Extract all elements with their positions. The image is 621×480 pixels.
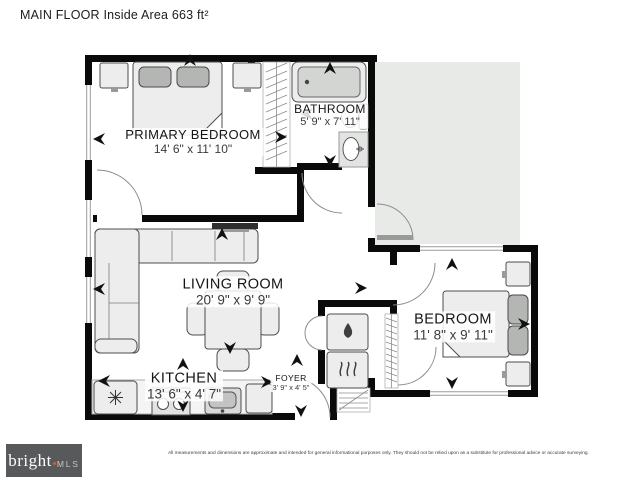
door-arc	[97, 170, 142, 215]
nightstand	[502, 262, 530, 286]
door-arc	[398, 347, 436, 385]
room-label-living-room: LIVING ROOM 20' 9" x 9' 9"	[180, 276, 285, 307]
deck-door-slab	[377, 235, 413, 240]
kitchen-cabinet	[246, 384, 272, 413]
room-dims: 11' 8" x 9' 11"	[411, 328, 495, 343]
snowflake-icon	[108, 390, 123, 405]
room-name: BEDROOM	[411, 311, 495, 327]
room-label-bathroom: BATHROOM 5' 9" x 7' 11"	[292, 103, 368, 129]
room-label-primary-bedroom: PRIMARY BEDROOM 14' 6" x 11' 10"	[123, 128, 263, 156]
logo-suffix-text: MLS	[57, 459, 80, 469]
door-arc	[393, 263, 435, 305]
floor-plan-drawing	[0, 0, 621, 480]
window	[84, 85, 93, 160]
bedroom-closet-hatch	[385, 314, 398, 388]
room-dims: 5' 9" x 7' 11"	[292, 117, 368, 129]
room-label-foyer: FOYER 3' 9" x 4' 5"	[271, 374, 312, 392]
nightstand	[502, 362, 530, 386]
window	[84, 277, 93, 323]
deck-area	[375, 62, 520, 245]
shelf-closet	[337, 388, 370, 412]
primary-bed	[133, 62, 222, 135]
room-name: KITCHEN	[145, 370, 223, 386]
arrow-icon	[93, 133, 105, 145]
room-dims: 13' 6" x 4' 7"	[145, 387, 223, 402]
door-arc	[305, 333, 322, 350]
door-arc	[302, 173, 342, 213]
window	[420, 244, 503, 253]
arrow-icon	[446, 258, 458, 270]
washer	[327, 314, 368, 350]
bathroom-sink	[339, 132, 368, 167]
room-label-bedroom: BEDROOM 11' 8" x 9' 11"	[411, 311, 495, 342]
arrow-icon	[355, 282, 367, 294]
refrigerator	[94, 381, 137, 414]
arrow-icon	[291, 354, 303, 366]
arrow-icon	[295, 405, 307, 417]
floor-plan-page: MAIN FLOOR Inside Area 663 ft²	[0, 0, 621, 480]
disclaimer-text: All measurements and dimensions are appr…	[168, 451, 614, 456]
room-label-kitchen: KITCHEN 13' 6" x 4' 7"	[145, 370, 223, 401]
wardrobe-closet-hatch	[263, 62, 290, 167]
dryer	[327, 352, 368, 388]
nightstand	[100, 63, 128, 92]
room-dims: 14' 6" x 11' 10"	[123, 143, 263, 156]
arrow-icon	[446, 377, 458, 389]
door-arc	[305, 316, 322, 333]
dining-chair	[217, 349, 249, 371]
logo-brand-text: bright	[8, 451, 52, 471]
room-name: PRIMARY BEDROOM	[123, 128, 263, 143]
logo-accent-dot	[53, 462, 56, 465]
nightstand	[233, 63, 261, 92]
room-name: BATHROOM	[292, 103, 368, 116]
arrow-icon	[177, 358, 189, 370]
room-dims: 20' 9" x 9' 9"	[180, 293, 285, 308]
room-dims: 3' 9" x 4' 5"	[271, 384, 312, 392]
brightmls-logo: bright MLS	[6, 444, 82, 477]
window	[430, 389, 508, 398]
window	[84, 200, 93, 257]
room-name: LIVING ROOM	[180, 276, 285, 292]
